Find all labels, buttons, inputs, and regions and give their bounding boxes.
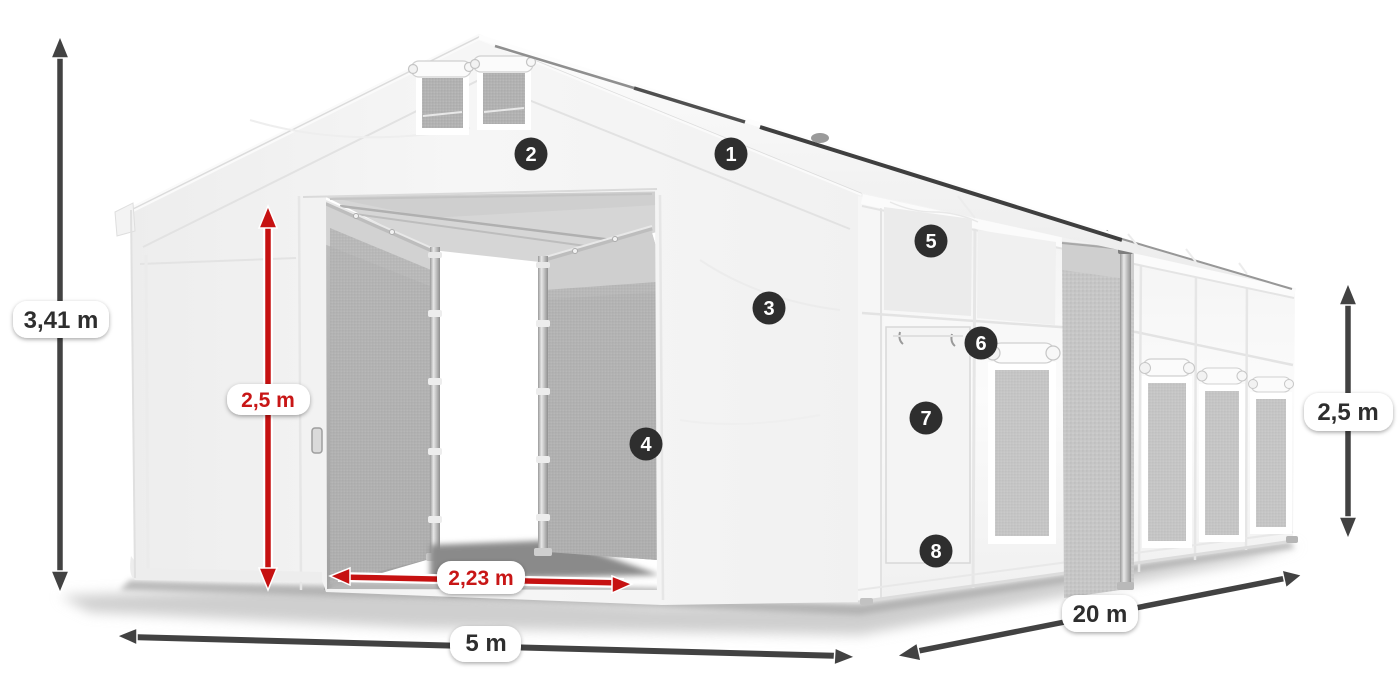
svg-text:3: 3 xyxy=(763,298,774,320)
svg-text:3,41 m: 3,41 m xyxy=(24,307,99,334)
svg-text:20 m: 20 m xyxy=(1073,601,1128,628)
svg-text:2,23 m: 2,23 m xyxy=(448,567,513,590)
svg-text:2: 2 xyxy=(525,144,536,166)
svg-text:5: 5 xyxy=(925,231,936,253)
svg-text:2,5 m: 2,5 m xyxy=(1317,399,1378,426)
svg-text:8: 8 xyxy=(930,541,941,563)
svg-text:4: 4 xyxy=(640,434,652,456)
svg-text:5 m: 5 m xyxy=(465,630,506,657)
svg-text:7: 7 xyxy=(920,408,931,430)
svg-text:6: 6 xyxy=(975,333,986,355)
svg-text:2,5 m: 2,5 m xyxy=(241,389,295,412)
svg-text:1: 1 xyxy=(725,144,736,166)
